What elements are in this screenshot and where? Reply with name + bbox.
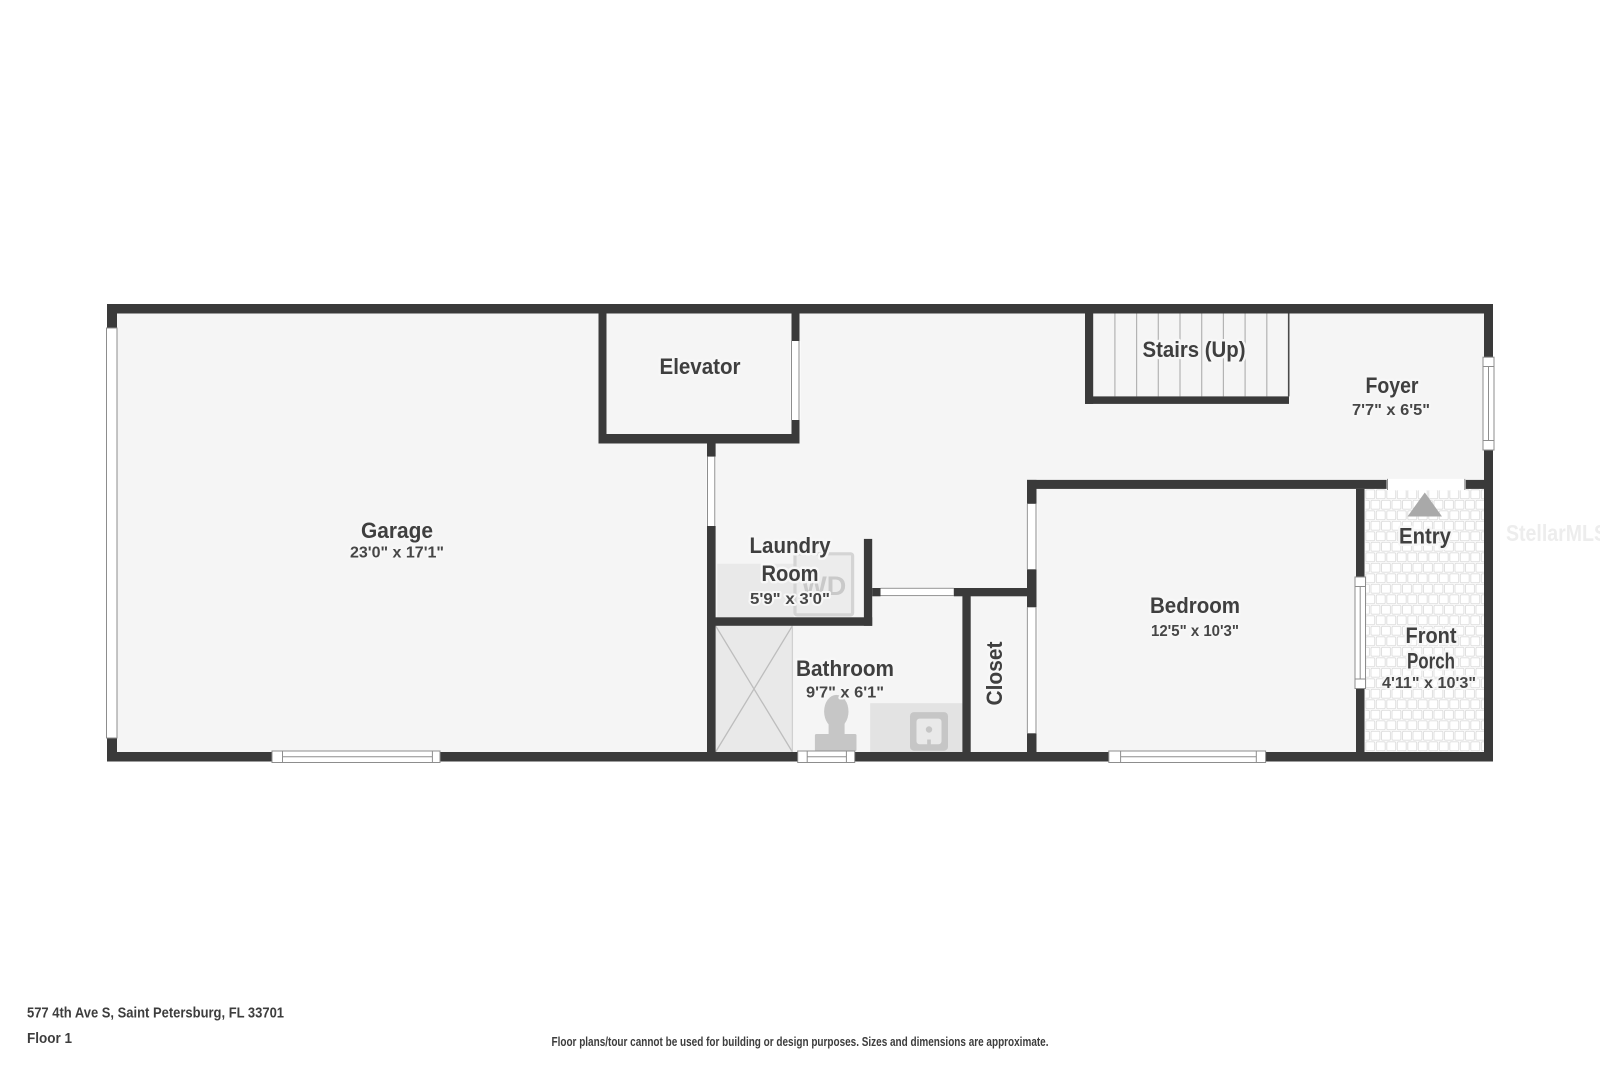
svg-text:Bathroom: Bathroom	[796, 656, 894, 681]
svg-text:Room: Room	[762, 561, 819, 586]
svg-text:Porch: Porch	[1407, 649, 1455, 674]
svg-text:4'11" x 10'3": 4'11" x 10'3"	[1382, 675, 1476, 692]
svg-text:Stairs (Up): Stairs (Up)	[1143, 337, 1246, 362]
svg-text:5'9" x 3'0": 5'9" x 3'0"	[750, 591, 830, 608]
svg-text:Foyer: Foyer	[1366, 373, 1419, 398]
svg-text:577 4th Ave S, Saint Petersbur: 577 4th Ave S, Saint Petersburg, FL 3370…	[27, 1006, 284, 1022]
svg-text:9'7" x 6'1": 9'7" x 6'1"	[806, 685, 884, 702]
svg-text:Bedroom: Bedroom	[1150, 593, 1240, 618]
svg-text:7'7" x 6'5": 7'7" x 6'5"	[1352, 402, 1430, 419]
svg-text:Floor plans/tour cannot be use: Floor plans/tour cannot be used for buil…	[552, 1035, 1049, 1049]
svg-text:Laundry: Laundry	[750, 533, 832, 558]
svg-text:23'0" x 17'1": 23'0" x 17'1"	[350, 545, 444, 562]
svg-text:Entry: Entry	[1399, 524, 1452, 549]
svg-text:Floor 1: Floor 1	[27, 1031, 72, 1047]
svg-text:12'5" x 10'3": 12'5" x 10'3"	[1151, 623, 1239, 640]
svg-text:Elevator: Elevator	[660, 354, 741, 379]
svg-text:StellarMLS: StellarMLS	[1506, 520, 1600, 546]
svg-text:Closet: Closet	[982, 641, 1007, 706]
svg-text:Garage: Garage	[361, 518, 433, 543]
svg-text:Front: Front	[1406, 623, 1458, 648]
